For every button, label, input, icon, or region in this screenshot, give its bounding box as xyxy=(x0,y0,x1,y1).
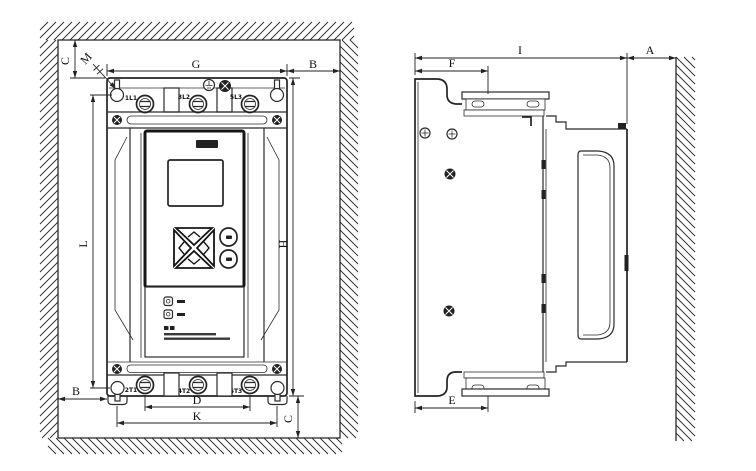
vent-tick-3 xyxy=(542,274,546,283)
side-view: I A F E xyxy=(415,43,695,441)
top-center-screw-icon xyxy=(219,80,231,92)
terminal-label-4T2: 4T2 xyxy=(178,388,190,395)
bottom-notch-left xyxy=(164,373,179,396)
terminal-screw-3L2 xyxy=(190,96,207,113)
dim-label-wall-clearance: A xyxy=(646,43,655,57)
terminal-label-1L1: 1L1 xyxy=(125,95,137,102)
rear-step-bottom xyxy=(546,362,627,372)
side-screw-4 xyxy=(444,306,455,317)
dim-label-total-depth: I xyxy=(518,43,522,57)
front-wall-hatch-right xyxy=(340,40,358,438)
dim-label-flange-depth-bottom: E xyxy=(448,393,455,407)
rear-clip-top xyxy=(618,123,626,129)
rear-step-top xyxy=(546,116,627,129)
front-view: 1L1 3L2 5L3 xyxy=(40,22,358,454)
dim-label-mounting-hole: M xyxy=(77,49,95,67)
front-wall-hatch-left xyxy=(40,40,58,438)
top-notch-left xyxy=(164,88,179,112)
brand-logo-mark xyxy=(196,140,218,148)
vent-tick-1 xyxy=(542,160,546,169)
front-wall-hatch-top xyxy=(40,22,354,40)
front-wall-hatch-bottom xyxy=(48,438,342,454)
dim-label-width: G xyxy=(192,57,201,71)
terminal-label-2T1: 2T1 xyxy=(125,387,137,394)
terminal-screw-6T3 xyxy=(242,377,259,394)
softstarter-front: 1L1 3L2 5L3 xyxy=(107,78,287,405)
mounting-keyhole-bottom-right xyxy=(268,382,287,405)
function-button-bottom-glyph xyxy=(226,258,232,262)
led-icon-2 xyxy=(164,310,173,319)
terminal-screw-2T1 xyxy=(137,377,154,394)
dim-label-mounting-pitch-horizontal: K xyxy=(193,409,202,423)
softstarter-side xyxy=(415,79,629,396)
dim-label-terminal-pitch: D xyxy=(193,393,202,407)
dim-label-clearance-right: B xyxy=(309,57,317,71)
installation-drawing: 1L1 3L2 5L3 xyxy=(0,0,756,471)
side-screw-2 xyxy=(447,129,457,139)
top-mounting-bracket xyxy=(462,92,549,116)
upper-band xyxy=(107,115,287,128)
vent-tick-4 xyxy=(542,304,546,313)
lower-band xyxy=(107,362,287,375)
dim-label-height: H xyxy=(276,239,290,248)
bottom-notch-right xyxy=(217,373,232,396)
side-door-profile xyxy=(415,79,462,396)
technical-drawing-canvas: 1L1 3L2 5L3 xyxy=(0,0,756,471)
terminal-screw-1L1 xyxy=(137,96,154,113)
dim-label-mounting-pitch-vertical: L xyxy=(76,240,90,247)
terminal-label-3L2: 3L2 xyxy=(178,94,190,101)
rear-edge-nub xyxy=(625,255,629,271)
corner-mark-icon xyxy=(522,117,531,126)
indicator-panel xyxy=(145,287,244,357)
side-wall-hatch xyxy=(676,57,695,441)
dim-label-top-clearance: C xyxy=(58,57,72,65)
side-screw-3 xyxy=(445,169,456,180)
led-icon-1 xyxy=(164,297,173,306)
bottom-mounting-bracket xyxy=(462,372,549,396)
dim-label-flange-depth-top: F xyxy=(449,56,456,70)
rear-cover-outline xyxy=(578,151,614,339)
mounting-keyhole-top-right xyxy=(271,80,284,102)
terminal-label-5L3: 5L3 xyxy=(230,94,242,101)
terminal-screw-4T2 xyxy=(190,377,207,394)
ground-terminal-icon xyxy=(204,80,215,91)
dim-label-clearance-left: B xyxy=(72,384,80,398)
terminal-screw-5L3 xyxy=(242,96,259,113)
side-screw-1 xyxy=(420,128,430,138)
dim-label-bottom-clearance: C xyxy=(281,415,295,423)
vent-tick-2 xyxy=(542,190,546,199)
function-button-top-glyph xyxy=(226,236,232,240)
